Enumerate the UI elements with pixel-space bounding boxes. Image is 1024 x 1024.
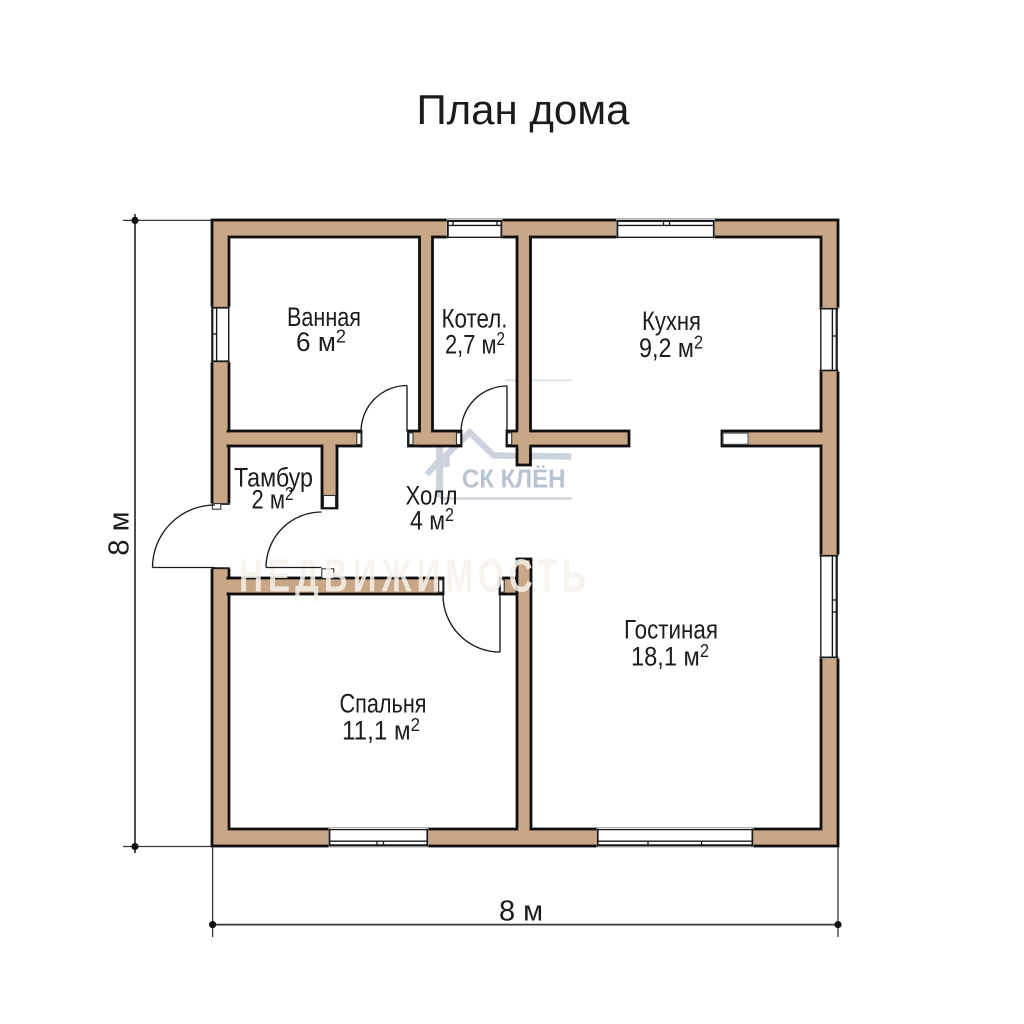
svg-text:Кухня: Кухня: [642, 306, 701, 336]
svg-text:8 м: 8 м: [499, 896, 543, 928]
svg-text:18,1 м2: 18,1 м2: [631, 640, 709, 672]
svg-text:План дома: План дома: [416, 86, 630, 133]
svg-text:11,1 м2: 11,1 м2: [342, 714, 420, 746]
svg-text:СК КЛЁН: СК КЛЁН: [462, 464, 566, 494]
svg-text:2,7 м2: 2,7 м2: [445, 328, 505, 360]
svg-text:НЕДВИЖИМОСТЬ: НЕДВИЖИМОСТЬ: [239, 551, 591, 601]
svg-text:8 м: 8 м: [104, 511, 136, 555]
svg-text:9,2 м2: 9,2 м2: [639, 332, 703, 364]
